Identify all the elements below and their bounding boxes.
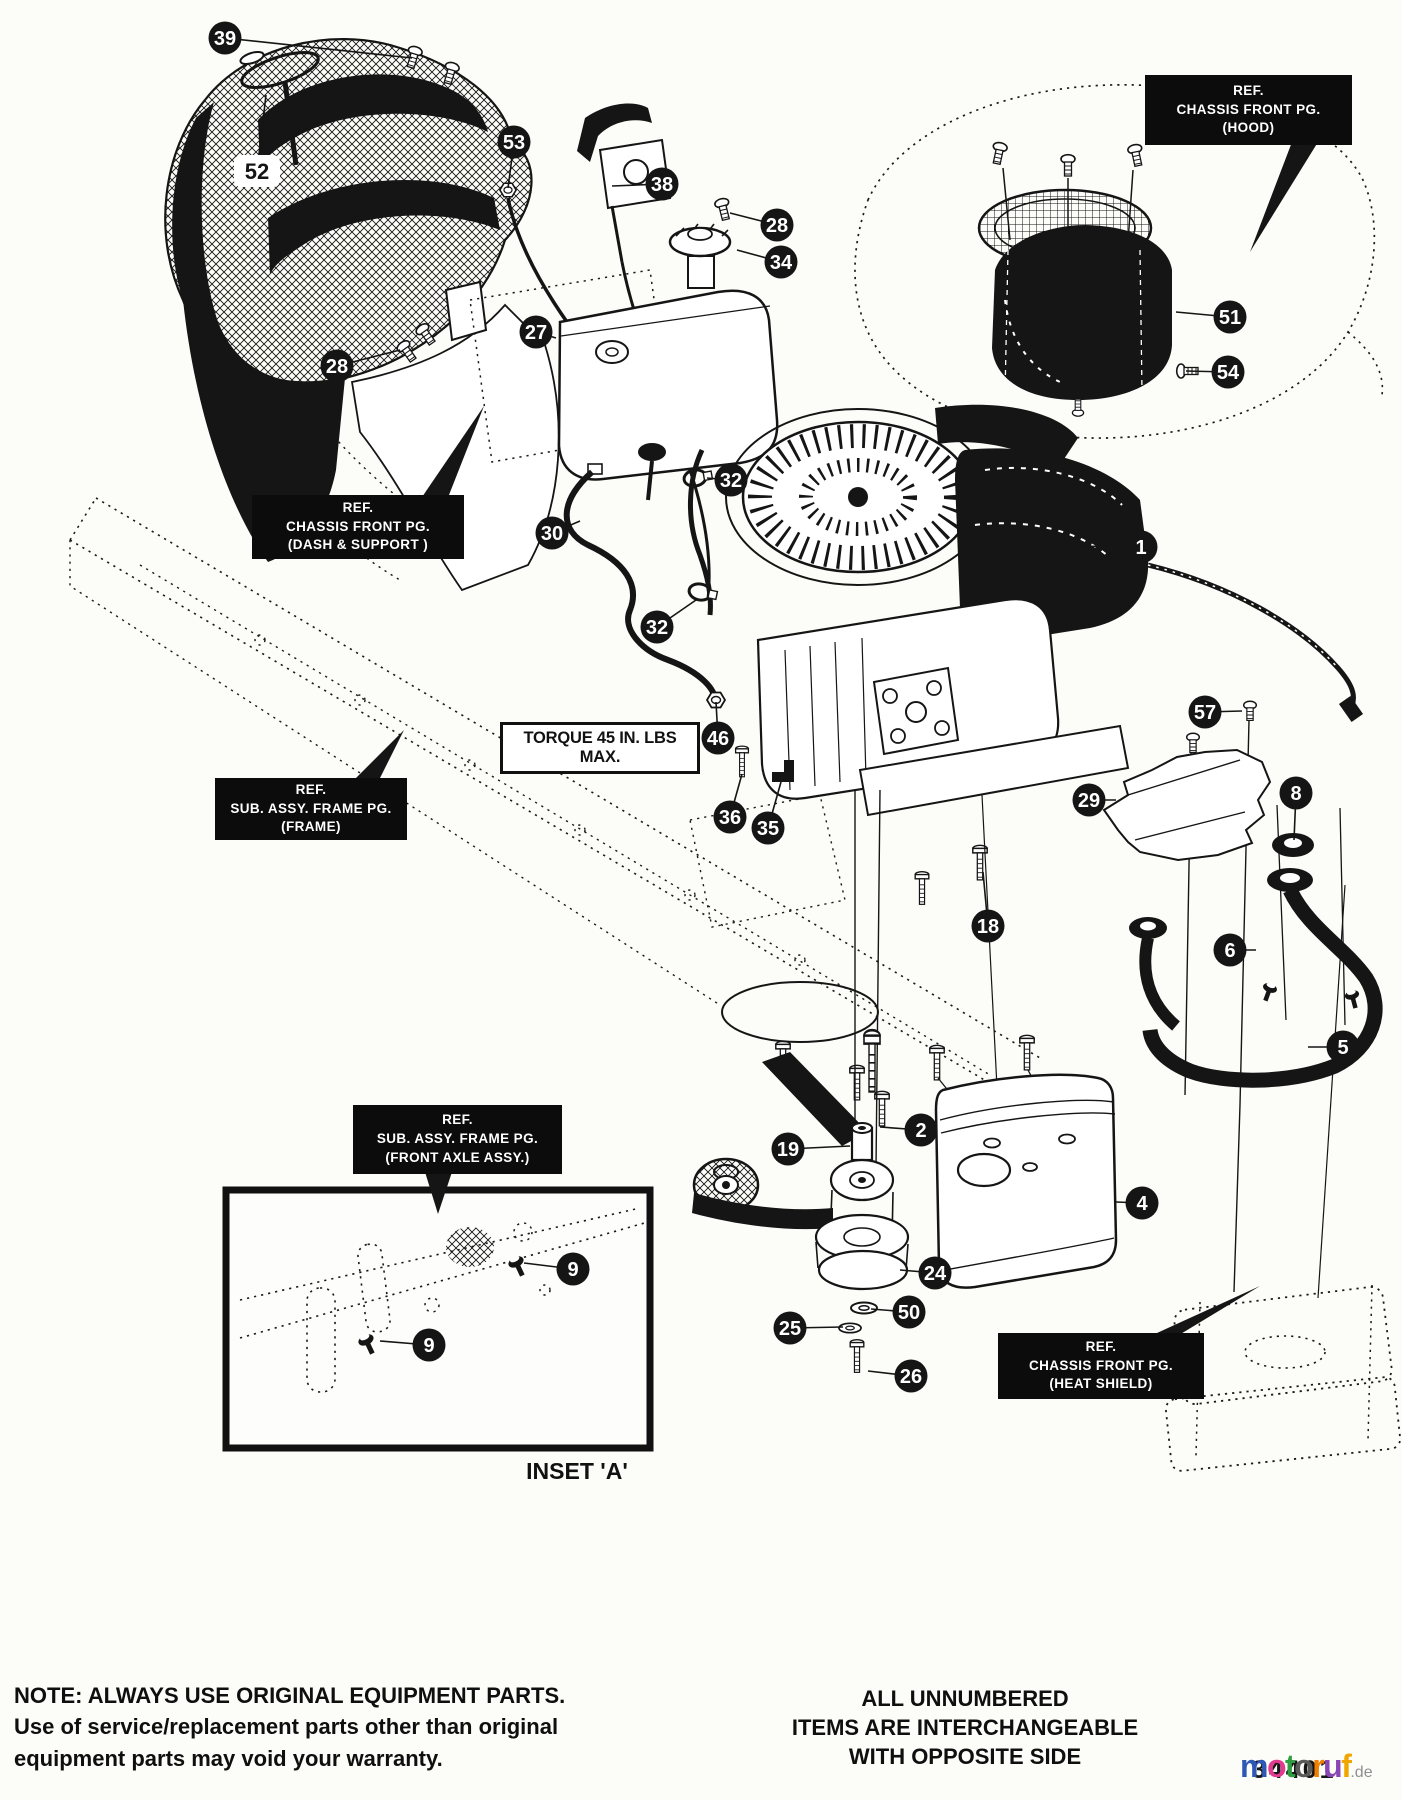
- watermark-letter: t: [1285, 1748, 1294, 1784]
- callout-number: 50: [898, 1302, 920, 1324]
- callout-54: 54: [1186, 356, 1245, 389]
- callout-number: 25: [779, 1318, 801, 1340]
- callout-26: 26: [868, 1360, 928, 1393]
- callout-52: 52: [234, 95, 280, 187]
- callout-53: 53: [498, 126, 531, 189]
- callout-38: 38: [612, 168, 679, 201]
- callout-number: 2: [915, 1120, 926, 1142]
- callout-number: 9: [567, 1259, 578, 1281]
- watermark-letter: o: [1267, 1748, 1285, 1784]
- callout-51: 51: [1176, 301, 1247, 334]
- callout-layer: 3952533828342728515432301325746363529818…: [0, 0, 1402, 1800]
- ref-box-line: CHASSIS FRONT PG.: [252, 519, 464, 536]
- callout-number: 26: [900, 1366, 922, 1388]
- watermark-letter: r: [1312, 1748, 1323, 1784]
- warranty-note-line: equipment parts may void your warranty.: [14, 1743, 565, 1774]
- callout-6: 6: [1214, 934, 1257, 967]
- callout-5: 5: [1308, 1031, 1360, 1064]
- watermark-brand: motoruf.de: [1240, 1748, 1373, 1785]
- ref-box-line: (HOOD): [1145, 120, 1352, 137]
- ref-box-line: (HEAT SHIELD): [998, 1376, 1204, 1393]
- callout-number: 28: [326, 356, 348, 378]
- watermark-letter: m: [1240, 1748, 1267, 1784]
- ref-box-line: REF.: [252, 500, 464, 517]
- ref-box-line: (FRONT AXLE ASSY.): [353, 1150, 562, 1167]
- callout-number: 18: [977, 916, 999, 938]
- callout-number: 29: [1078, 790, 1100, 812]
- callout-leader-line: [225, 38, 412, 58]
- ref-box-frame: REF. SUB. ASSY. FRAME PG. (FRAME): [215, 778, 407, 840]
- watermark: 34401 motoruf.de: [1238, 1744, 1402, 1796]
- callout-1: 1: [1078, 531, 1158, 564]
- callout-50: 50: [871, 1296, 926, 1329]
- callout-number: 28: [766, 215, 788, 237]
- callout-number: 32: [646, 617, 668, 639]
- callout-number: 27: [525, 322, 547, 344]
- interchangeable-note-line: ALL UNNUMBERED: [690, 1684, 1240, 1713]
- callout-27: 27: [520, 316, 557, 349]
- parts-diagram-page: 3952533828342728515432301325746363529818…: [0, 0, 1402, 1800]
- callout-number: 34: [770, 252, 793, 274]
- callout-32: 32: [641, 600, 697, 644]
- torque-note: TORQUE 45 IN. LBS MAX.: [500, 722, 700, 774]
- callout-35: 35: [752, 782, 785, 845]
- watermark-tld: .de: [1350, 1764, 1372, 1781]
- ref-box-front-axle: REF. SUB. ASSY. FRAME PG. (FRONT AXLE AS…: [353, 1105, 562, 1174]
- callout-number: 8: [1290, 783, 1301, 805]
- ref-box-line: CHASSIS FRONT PG.: [998, 1358, 1204, 1375]
- callout-number: 5: [1337, 1037, 1348, 1059]
- callout-number: 30: [541, 523, 563, 545]
- callout-25: 25: [774, 1312, 844, 1345]
- callout-18: 18: [972, 872, 1005, 943]
- callout-number: 19: [777, 1139, 799, 1161]
- callout-39: 39: [209, 22, 413, 59]
- callout-number: 53: [503, 132, 525, 154]
- warranty-note-line: NOTE: ALWAYS USE ORIGINAL EQUIPMENT PART…: [14, 1680, 565, 1711]
- warranty-note: NOTE: ALWAYS USE ORIGINAL EQUIPMENT PART…: [14, 1680, 565, 1774]
- callout-9: 9: [524, 1253, 590, 1286]
- callout-number: 24: [924, 1263, 947, 1285]
- callout-number: 57: [1194, 702, 1216, 724]
- interchangeable-note-line: ITEMS ARE INTERCHANGEABLE: [690, 1713, 1240, 1742]
- callout-number: 35: [757, 818, 779, 840]
- callout-number: 36: [719, 807, 741, 829]
- callout-29: 29: [1073, 784, 1117, 817]
- callout-number: 46: [707, 728, 729, 750]
- ref-box-line: (FRAME): [215, 819, 407, 836]
- callout-number: 1: [1135, 537, 1146, 559]
- ref-box-line: SUB. ASSY. FRAME PG.: [215, 801, 407, 818]
- callout-34: 34: [737, 246, 798, 279]
- callout-32: 32: [707, 464, 748, 497]
- ref-box-hood: REF. CHASSIS FRONT PG. (HOOD): [1145, 75, 1352, 145]
- callout-number: 6: [1224, 940, 1235, 962]
- callout-30: 30: [536, 517, 581, 550]
- callout-28: 28: [321, 350, 401, 383]
- callout-36: 36: [714, 774, 747, 834]
- ref-box-heat-shield: REF. CHASSIS FRONT PG. (HEAT SHIELD): [998, 1333, 1204, 1399]
- callout-24: 24: [900, 1257, 952, 1290]
- ref-box-line: SUB. ASSY. FRAME PG.: [353, 1131, 562, 1148]
- callout-8: 8: [1280, 777, 1313, 841]
- watermark-letter: f: [1341, 1748, 1350, 1784]
- callout-4: 4: [1116, 1187, 1159, 1220]
- ref-box-line: (DASH & SUPPORT ): [252, 537, 464, 554]
- callout-9: 9: [380, 1329, 446, 1362]
- callout-number: 54: [1217, 362, 1240, 384]
- interchangeable-note-line: WITH OPPOSITE SIDE: [690, 1742, 1240, 1771]
- callout-number: 52: [245, 159, 269, 184]
- callout-57: 57: [1189, 696, 1243, 729]
- callout-number: 38: [651, 174, 673, 196]
- callout-28: 28: [730, 209, 794, 242]
- ref-box-line: CHASSIS FRONT PG.: [1145, 102, 1352, 119]
- watermark-letter: u: [1323, 1748, 1341, 1784]
- interchangeable-note: ALL UNNUMBERED ITEMS ARE INTERCHANGEABLE…: [690, 1684, 1240, 1771]
- ref-box-line: REF.: [1145, 83, 1352, 100]
- inset-a-label: INSET 'A': [492, 1458, 662, 1485]
- callout-46: 46: [702, 702, 735, 755]
- ref-box-line: REF.: [353, 1112, 562, 1129]
- ref-box-line: REF.: [215, 782, 407, 799]
- ref-box-dash-support: REF. CHASSIS FRONT PG. (DASH & SUPPORT ): [252, 495, 464, 559]
- warranty-note-line: Use of service/replacement parts other t…: [14, 1711, 565, 1742]
- callout-number: 39: [214, 28, 236, 50]
- callout-number: 32: [720, 470, 742, 492]
- callout-2: 2: [880, 1114, 938, 1147]
- callout-19: 19: [772, 1133, 851, 1166]
- watermark-letter: o: [1294, 1748, 1312, 1784]
- callout-number: 51: [1219, 307, 1241, 329]
- ref-box-line: REF.: [998, 1339, 1204, 1356]
- callout-number: 9: [423, 1335, 434, 1357]
- callout-number: 4: [1136, 1193, 1148, 1215]
